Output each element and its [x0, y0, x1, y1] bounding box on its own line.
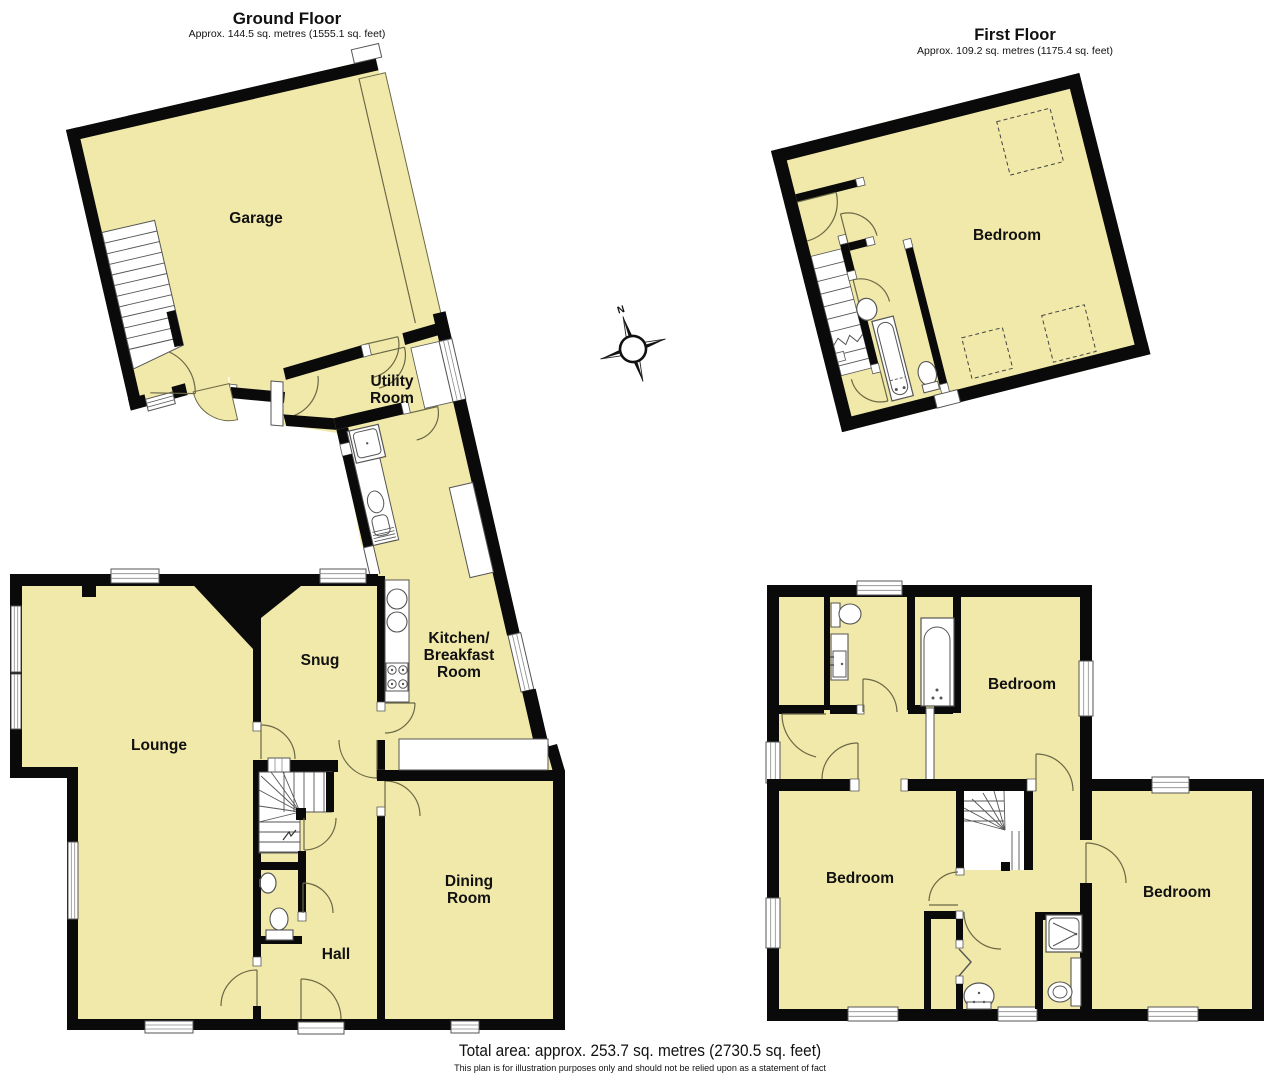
svg-text:Room: Room — [370, 390, 414, 407]
svg-text:Room: Room — [437, 664, 481, 681]
svg-text:Total area: approx. 253.7 sq.: Total area: approx. 253.7 sq. metres (27… — [459, 1043, 821, 1061]
svg-text:Lounge: Lounge — [131, 737, 187, 754]
svg-text:Hall: Hall — [322, 946, 350, 963]
svg-text:Utility: Utility — [370, 373, 413, 390]
svg-text:Bedroom: Bedroom — [973, 227, 1041, 244]
svg-text:Ground Floor: Ground Floor — [233, 9, 342, 28]
svg-text:Bedroom: Bedroom — [988, 676, 1056, 693]
svg-text:Breakfast: Breakfast — [424, 647, 495, 664]
svg-text:Bedroom: Bedroom — [826, 870, 894, 887]
svg-text:First Floor: First Floor — [974, 26, 1056, 44]
svg-text:Garage: Garage — [229, 210, 283, 227]
svg-text:This plan is for illustration: This plan is for illustration purposes o… — [454, 1063, 826, 1073]
svg-text:Dining: Dining — [445, 873, 493, 890]
svg-text:Snug: Snug — [301, 652, 340, 669]
svg-text:Bedroom: Bedroom — [1143, 884, 1211, 901]
svg-text:Room: Room — [447, 890, 491, 907]
svg-text:Approx. 109.2 sq. metres (1175: Approx. 109.2 sq. metres (1175.4 sq. fee… — [917, 45, 1113, 57]
svg-text:Kitchen/: Kitchen/ — [428, 630, 490, 647]
svg-text:Approx. 144.5 sq. metres (1555: Approx. 144.5 sq. metres (1555.1 sq. fee… — [189, 28, 386, 40]
